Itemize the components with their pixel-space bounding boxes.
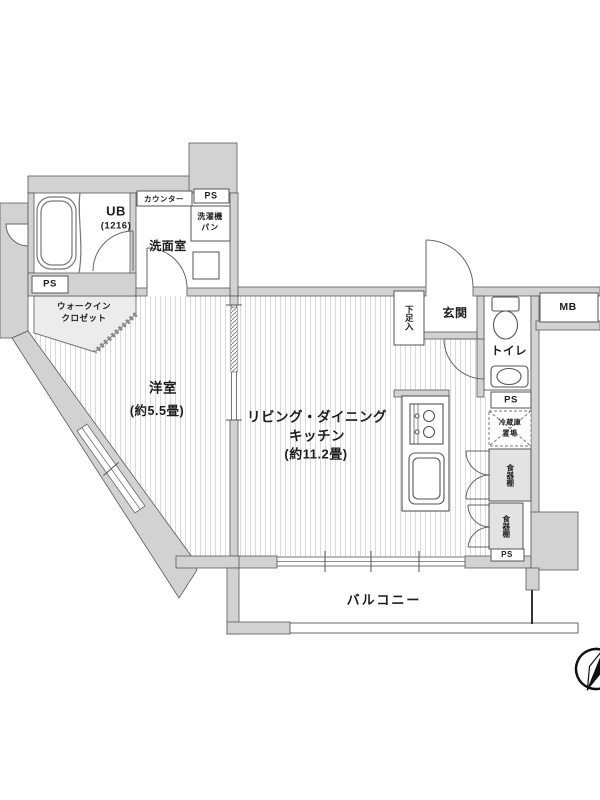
floorplan-page: UB (1216) カウンター PS 洗濯機 パン 洗面室 PS ウォークイン … xyxy=(0,0,600,800)
washer-pan-label-2: パン xyxy=(201,224,218,232)
washbasin-box xyxy=(193,252,219,279)
balcony-label: バルコニー xyxy=(347,594,422,607)
cupboard-upper-label: 食器棚 xyxy=(506,464,514,487)
ldk-label-2: キッチン xyxy=(289,429,345,443)
shoe-cabinet-label: 下足入 xyxy=(405,305,414,331)
toilet-label: トイレ xyxy=(491,346,527,358)
meter-box-label: MB xyxy=(559,302,576,313)
stove xyxy=(410,404,443,444)
ps-label-bottom: PS xyxy=(501,551,513,559)
cupboard-lower-label: 食器棚 xyxy=(502,515,510,538)
bathtub xyxy=(37,193,81,273)
ldk-size: (約11.2畳) xyxy=(284,448,347,461)
unit-bath-label: UB xyxy=(106,205,126,218)
entrance-door xyxy=(426,240,473,287)
entrance-label: 玄関 xyxy=(442,307,467,319)
kitchen-counter xyxy=(402,396,449,511)
ldk-label-1: リビング・ダイニング xyxy=(247,410,387,424)
toilet-bowl xyxy=(494,311,518,339)
western-room-size: (約5.5畳) xyxy=(130,405,184,418)
counter-label: カウンター xyxy=(144,195,184,203)
ps-label-top: PS xyxy=(204,192,217,201)
western-room-label: 洋室 xyxy=(149,381,177,395)
fridge-space-label-2: 置場 xyxy=(503,431,518,438)
closet-label-1: ウォークイン xyxy=(57,302,111,311)
toilet-tank xyxy=(492,297,519,311)
washer-pan-label-1: 洗濯機 xyxy=(197,213,223,221)
unit-bath-size: (1216) xyxy=(101,221,131,231)
washroom-label: 洗面室 xyxy=(149,240,187,252)
kitchen-aisle-floor xyxy=(477,397,490,556)
ps-label-toilet: PS xyxy=(504,395,518,405)
compass-icon xyxy=(569,640,600,698)
fridge-space-label-1: 冷蔵庫 xyxy=(499,420,522,427)
ps-label-left: PS xyxy=(43,279,57,289)
closet-label-2: クロゼット xyxy=(61,314,106,323)
fridge-space-box xyxy=(489,411,531,446)
